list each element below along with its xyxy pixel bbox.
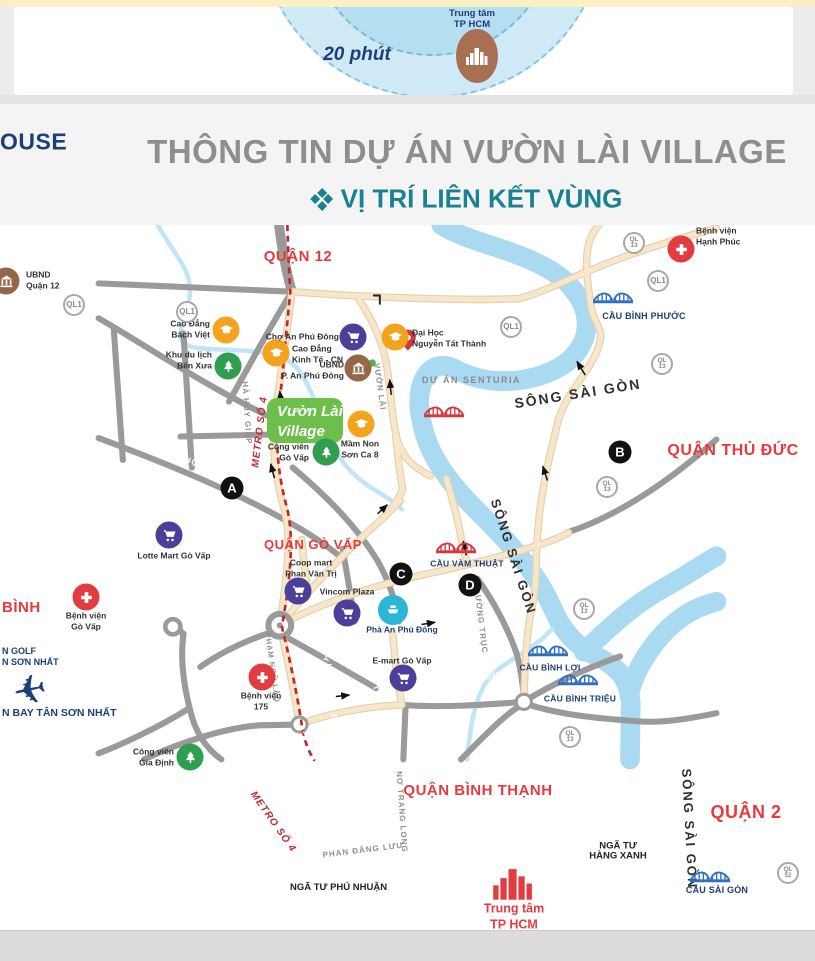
region-map: Vườn Lài Village ✈ QUẬN 12QUẬN THỦ ĐỨCQU… [0, 225, 815, 930]
map-label: CẦU BÌNH PHƯỚC [602, 312, 685, 322]
poi-label: UBND P. An Phú Đông [281, 359, 344, 380]
map-label: CẦU BÌNH TRIỆU [544, 694, 616, 703]
bridge-icon [558, 671, 598, 688]
route-marker-A: A [221, 477, 244, 500]
poi-label: Đại Học Nguyễn Tất Thành [412, 327, 486, 348]
map-label: BÌNH [2, 600, 41, 617]
top-yellow-strip [0, 0, 815, 7]
map-label: PHẠM VĂN ĐỒNG [425, 670, 507, 694]
map-label: ỤNG VĂN KHIÊM [587, 787, 656, 839]
map-label: QUANG TRUNG [0, 521, 61, 554]
travel-time-card: 20 phút Trung tâm TP HCM [14, 7, 793, 95]
cross-icon [668, 236, 695, 263]
map-label: HÀ HUY GIÁP [239, 381, 252, 445]
map-label: SÔNG SÀI GÒN [513, 376, 642, 411]
highway-badge: QL 13 [596, 476, 618, 498]
route-marker-C: C [390, 563, 413, 586]
highway-badge: QL 13 [559, 726, 581, 748]
poi-label: Mầm Non Sơn Ca 8 [341, 438, 379, 459]
poi-label: Phà An Phú Đông [366, 625, 437, 636]
map-label: NGÃ TƯ HÀNG XANH [589, 842, 647, 863]
map-label: NGUYỄN VĂN LƯỢNG [130, 497, 227, 505]
highway-badge: QL1 [176, 301, 198, 323]
map-label: TRƯỜNG SƠN [108, 760, 121, 827]
route-marker-B: B [609, 441, 632, 464]
bridge-icon [690, 868, 730, 885]
poi-label: UBND Quận 12 [26, 269, 60, 290]
tree-icon [215, 353, 242, 380]
bank-icon [0, 268, 20, 295]
page-title: THÔNG TIN DỰ ÁN VƯỜN LÀI VILLAGE [147, 133, 787, 171]
map-label: SÔNG SÀI GÒN [488, 497, 539, 616]
poi-label: Lotte Mart Gò Vấp [137, 551, 210, 562]
poi-label: Trung tâm TP HCM [484, 901, 544, 930]
poi-label: Vincom Plaza [320, 587, 375, 598]
poi-label: Công viên Gia Định [133, 746, 174, 767]
divider-band [0, 95, 815, 104]
bank-icon [345, 355, 372, 382]
bridge-icon [424, 403, 464, 420]
map-label: LÊ VĂN THỌ [19, 441, 32, 500]
brand-logo: OUSE [0, 129, 67, 156]
travel-time-banner: 20 phút Trung tâm TP HCM [0, 7, 815, 95]
poi-label: Công viên Gò Vấp [268, 441, 309, 462]
poi-label: Bệnh viện Gò Vấp [66, 610, 107, 631]
map-label: CẦU SÀI GÒN [686, 886, 748, 896]
diamond-cluster-icon [312, 189, 332, 209]
map-label: N BAY TÂN SƠN NHẤT [2, 708, 117, 720]
city-center-node [456, 29, 498, 83]
bridge-icon [436, 539, 476, 556]
cap-icon [382, 324, 409, 351]
map-label: THỐNG NHẤT [109, 455, 124, 519]
map-label: LÊ ĐỨC THỌ [141, 439, 200, 469]
map-label: VƯỜN LÀI [371, 363, 386, 411]
page-header: OUSE THÔNG TIN DỰ ÁN VƯỜN LÀI VILLAGE VỊ… [0, 104, 815, 225]
subtitle-text: VỊ TRÍ LIÊN KẾT VÙNG [341, 184, 623, 215]
cart-icon [285, 578, 312, 605]
map-label: NGUYỄN KIỆM [233, 654, 249, 722]
cart-icon [156, 522, 183, 549]
map-label: PHAN VĂN TRỊ [355, 637, 383, 702]
highway-badge: QL 13 [573, 598, 595, 620]
map-label: METRO SỐ 4 [248, 789, 298, 854]
map-label: N GOLF [2, 647, 36, 657]
map-label: HOÀNG VĂN THỤ [166, 877, 247, 891]
map-label: PHẠM VĂN ĐỒNG [272, 720, 354, 747]
bridge-icon [528, 642, 568, 659]
map-label: CẦU VÀM THUẬT [430, 559, 503, 568]
tree-icon [313, 439, 340, 466]
map-label: QUẬN GÒ VẤP [264, 538, 362, 552]
map-label: LÊ ĐỨC THỌ [22, 355, 78, 393]
map-label: QUẬN 2 [710, 803, 781, 823]
cap-icon [348, 411, 375, 438]
cart-icon [340, 324, 367, 351]
map-label: ĐƯỜNG TRỤC [472, 588, 489, 654]
map-overlays: Vườn Lài Village ✈ QUẬN 12QUẬN THỦ ĐỨCQU… [0, 225, 815, 930]
highway-badge: QL1 [500, 316, 522, 338]
poi-label: Khu du lịch Bến Xưa [166, 349, 212, 370]
bottom-gray-strip [0, 930, 815, 961]
cross-icon [73, 584, 100, 611]
map-label: ĐIỆN BIÊN PHỦ [577, 860, 650, 885]
section-subtitle: VỊ TRÍ LIÊN KẾT VÙNG [312, 184, 623, 215]
map-label: NGUYỄN OANH [229, 566, 258, 636]
map-label: QUẬN 12 [264, 249, 333, 266]
highway-badge: QL 13 [651, 353, 673, 375]
poi-label: Coop mart Phan Văn Trị [285, 557, 337, 578]
map-label: PHAN ĐĂNG LƯU [322, 842, 403, 861]
poi-label: E-mart Gò Vấp [372, 656, 431, 667]
hcm-icon [491, 866, 535, 907]
map-label: N SƠN NHẤT [2, 658, 59, 668]
bridge-icon [593, 289, 633, 306]
poi-label: Bệnh viện 175 [241, 690, 282, 711]
highway-badge: QL1 [647, 270, 669, 292]
route-marker-D: D [459, 574, 482, 597]
map-label: DỰ ÁN SENTURIA [422, 376, 521, 386]
map-label: QUANG TRUNG [116, 561, 185, 598]
map-label: NGÃ TƯ PHÚ NHUẬN [290, 883, 387, 893]
highway-badge: QL 52 [777, 862, 799, 884]
poi-label: Chợ An Phú Đông [266, 332, 339, 343]
poi-label: Bệnh viện Hạnh Phúc [696, 225, 740, 246]
cap-icon [213, 317, 240, 344]
map-label: QUẬN BÌNH THẠNH [403, 783, 552, 800]
cart-icon [390, 665, 417, 692]
ferry-icon [378, 595, 408, 625]
map-label: QUẬN THỦ ĐỨC [667, 442, 798, 460]
tree-icon [177, 744, 204, 771]
project-callout: Vườn Lài Village [267, 398, 343, 443]
map-label: NGUYỄN XÍ [523, 716, 559, 766]
city-center-label: Trung tâm TP HCM [449, 9, 495, 31]
highway-badge: QL 13 [623, 232, 645, 254]
city-skyline-icon [465, 46, 489, 66]
highway-badge: QL1 [63, 294, 85, 316]
cross-icon [249, 664, 276, 691]
cart-icon [334, 600, 361, 627]
travel-minutes-label: 20 phút [323, 44, 391, 66]
